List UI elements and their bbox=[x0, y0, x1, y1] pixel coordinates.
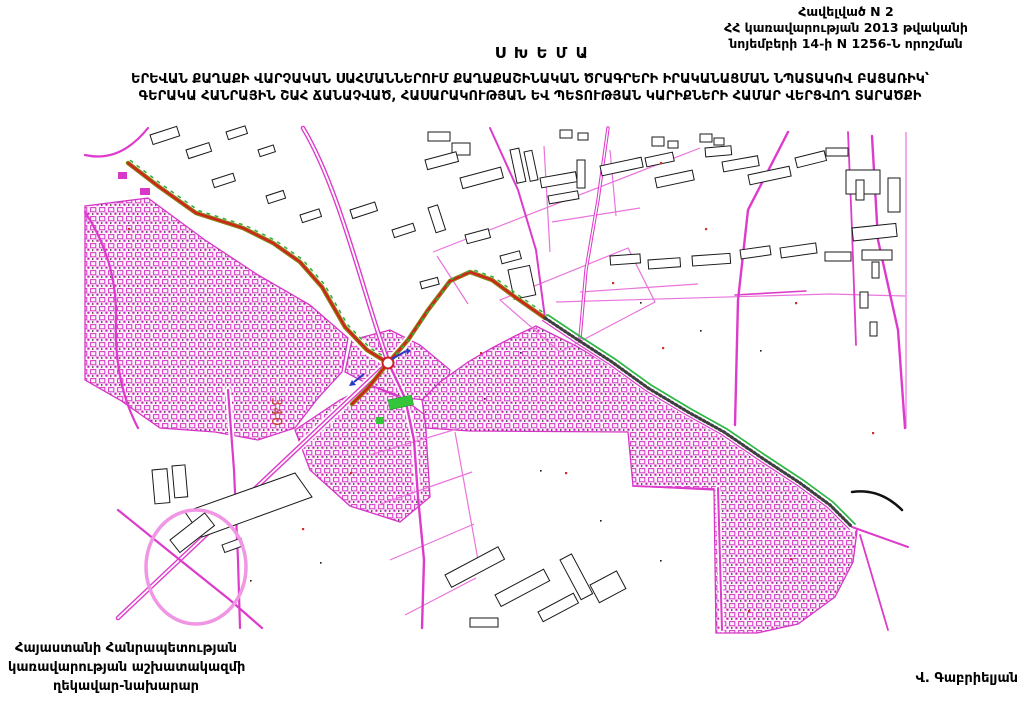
subtitle-line-1: ԵՐԵՎԱՆ ՔԱՂԱՔԻ ՎԱՐՉԱԿԱՆ ՍԱՀՄԱՆՆԵՐՈՒՄ ՔԱՂԱ… bbox=[0, 71, 1032, 88]
signatory-line-2: կառավարության աշխատակազմի bbox=[8, 658, 244, 677]
signature-name: Վ. Գաբրիելյան bbox=[916, 671, 1018, 686]
signatory-line-3: ղեկավար-նախարար bbox=[8, 677, 244, 696]
schema-map: 340 bbox=[0, 0, 1032, 703]
annex-line-1: Հավելված N 2 bbox=[690, 4, 1002, 20]
schema-title: Ս Խ Ե Մ Ա bbox=[0, 44, 1032, 62]
parcel-number-label: 340 bbox=[268, 397, 284, 427]
map-container: 340 bbox=[0, 0, 1032, 703]
signatory-block: Հայաստանի Հանրապետության կառավարության ա… bbox=[8, 639, 244, 696]
subtitle-line-2: ԳԵՐԱԿԱ ՀԱՆՐԱՅԻՆ ՇԱՀ ՃԱՆԱՉՎԱԾ, ՀԱՍԱՐԱԿՈՒԹ… bbox=[0, 88, 1032, 105]
annex-line-2: ՀՀ կառավարության 2013 թվականի bbox=[690, 20, 1002, 36]
document-subtitle: ԵՐԵՎԱՆ ՔԱՂԱՔԻ ՎԱՐՉԱԿԱՆ ՍԱՀՄԱՆՆԵՐՈՒՄ ՔԱՂԱ… bbox=[0, 71, 1032, 105]
signatory-line-1: Հայաստանի Հանրապետության bbox=[8, 639, 244, 658]
